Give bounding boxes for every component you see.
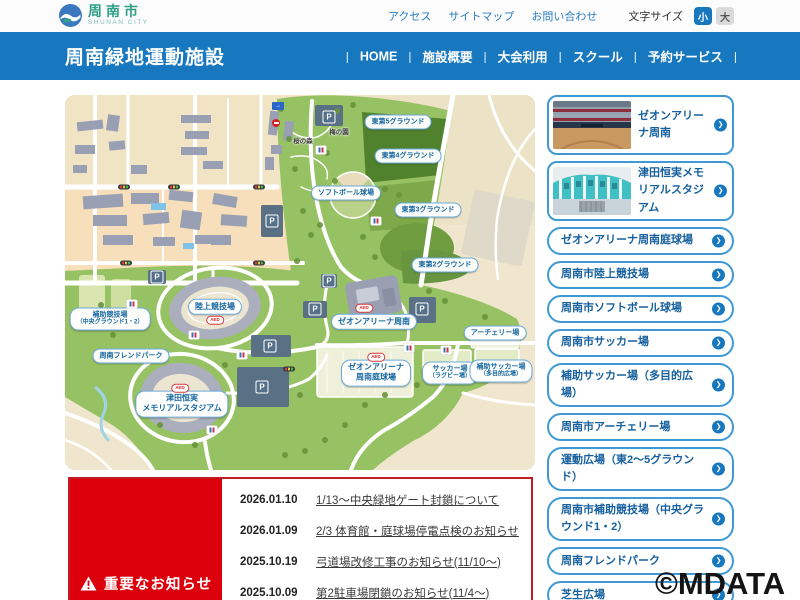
traffic-light-icon: [120, 261, 132, 266]
facility-map: 東第5グラウンド東第4グラウンドソフトボール球場東第3グラウンド東第2グラウンド…: [65, 95, 535, 470]
restroom-icon: [127, 300, 138, 309]
map-label-pill: アーチェリー場: [464, 325, 527, 340]
sidebar-link-label: 補助サッカー場（多目的広場）: [561, 368, 708, 402]
nav-separator: |: [408, 49, 411, 63]
important-notices-title: 重要なお知らせ: [104, 573, 212, 594]
nav-item[interactable]: 施設概要: [422, 47, 472, 66]
fontsize-small-button[interactable]: 小: [694, 7, 712, 25]
aed-icon: AED: [171, 384, 189, 393]
nav-separator: |: [346, 49, 349, 63]
notice-row: 2025.10.19弓道場改修工事のお知らせ(11/10〜): [240, 546, 521, 577]
restroom-icon: [189, 331, 200, 340]
map-area-label: 桜の森: [293, 135, 313, 145]
map-area-label: 梅の園: [329, 126, 349, 136]
site-header: 周南緑地運動施設 |HOME|施設概要|大会利用|スクール|予約サービス|: [0, 32, 800, 80]
nav-separator: |: [559, 49, 562, 63]
sidebar-link-label: 周南市補助競技場（中央グラウンド1・2）: [561, 502, 708, 536]
header-nav: |HOME|施設概要|大会利用|スクール|予約サービス|: [346, 47, 737, 66]
traffic-light-icon: [253, 261, 265, 266]
restroom-icon: [441, 346, 452, 355]
sidebar-link-label: 周南フレンドパーク: [561, 553, 660, 570]
map-label-pill: ゼオンアリーナ周南: [331, 314, 417, 330]
sidebar-links: ゼオンアリーナ周南庭球場❯周南市陸上競技場❯周南市ソフトボール球場❯周南市サッカ…: [547, 227, 734, 600]
chevron-right-icon: ❯: [712, 513, 725, 526]
notice-link[interactable]: 2/3 体育館・庭球場停電点検のお知らせ: [316, 523, 519, 539]
sidebar-link-label: 周南市ソフトボール球場: [561, 300, 682, 317]
notice-row: 2026.01.101/13〜中央緑地ゲート封鎖について: [240, 484, 521, 515]
top-utility-bar: 周南市 SHUNAN CITY アクセスサイトマップお問い合わせ 文字サイズ 小…: [0, 0, 800, 32]
chevron-right-icon: ❯: [712, 235, 725, 248]
aed-icon: AED: [367, 353, 385, 362]
notice-date: 2026.01.09: [240, 525, 304, 537]
city-logo-icon: [58, 3, 83, 28]
page: 周南市 SHUNAN CITY アクセスサイトマップお問い合わせ 文字サイズ 小…: [0, 0, 800, 600]
nav-separator: |: [483, 49, 486, 63]
sidebar-link[interactable]: 周南市サッカー場❯: [547, 329, 734, 357]
map-label-pill: ゼオンアリーナ周南庭球場: [341, 360, 411, 387]
fontsize-label: 文字サイズ: [628, 8, 683, 24]
restroom-icon: [316, 146, 327, 155]
map-overlay: 東第5グラウンド東第4グラウンドソフトボール球場東第3グラウンド東第2グラウンド…: [65, 95, 535, 470]
sidebar-link[interactable]: 周南市アーチェリー場❯: [547, 413, 734, 441]
aed-icon: AED: [206, 316, 224, 325]
nav-item[interactable]: HOME: [360, 49, 398, 63]
sidebar-link[interactable]: 補助サッカー場（多目的広場）❯: [547, 363, 734, 407]
nav-separator: |: [634, 49, 637, 63]
notice-list: 2026.01.101/13〜中央緑地ゲート封鎖について2026.01.092/…: [222, 479, 531, 600]
parking-icon: P: [416, 303, 429, 316]
notice-row: 2026.01.092/3 体育館・庭球場停電点検のお知らせ: [240, 515, 521, 546]
chevron-right-icon: ❯: [714, 119, 727, 132]
city-logo-text: 周南市 SHUNAN CITY: [88, 4, 149, 27]
map-label-pill: 東第5グラウンド: [365, 114, 432, 129]
city-name-romaji: SHUNAN CITY: [88, 20, 149, 27]
sidebar-link-label: 周南市陸上競技場: [561, 266, 649, 283]
sidebar-link-label: 芝生広場: [561, 587, 605, 600]
notice-link[interactable]: 1/13〜中央緑地ゲート封鎖について: [316, 492, 499, 508]
topbar-links: アクセスサイトマップお問い合わせ: [388, 8, 614, 24]
traffic-light-icon: [253, 185, 265, 190]
chevron-right-icon: ❯: [712, 337, 725, 350]
parking-icon: P: [323, 275, 336, 288]
map-label-pill: 東第3グラウンド: [395, 202, 462, 217]
map-label-pill: 陸上競技場: [188, 299, 242, 315]
notice-date: 2025.10.19: [240, 556, 304, 568]
fontsize-large-button[interactable]: 大: [716, 7, 734, 25]
sidebar-link[interactable]: 周南市ソフトボール球場❯: [547, 295, 734, 323]
aed-icon: AED: [355, 304, 373, 313]
topbar-right: アクセスサイトマップお問い合わせ 文字サイズ 小 大: [388, 0, 734, 32]
chevron-right-icon: ❯: [714, 185, 727, 198]
sidebar-link-label: ゼオンアリーナ周南庭球場: [561, 232, 693, 249]
sidebar-link-label: 周南市アーチェリー場: [561, 419, 670, 436]
nav-item[interactable]: 予約サービス: [648, 47, 723, 66]
notice-link[interactable]: 第2駐車場閉鎖のお知らせ(11/4〜): [316, 585, 489, 600]
parking-icon: P: [323, 111, 336, 124]
parking-icon: P: [151, 271, 164, 284]
sidebar-link-label: 周南市サッカー場: [561, 334, 649, 351]
topbar-link[interactable]: お問い合わせ: [531, 8, 597, 24]
parking-icon: P: [264, 340, 277, 353]
nav-separator: |: [734, 49, 737, 63]
traffic-light-icon: [168, 185, 180, 190]
sidebar-link[interactable]: ゼオンアリーナ周南庭球場❯: [547, 227, 734, 255]
no-entry-sign-icon: [272, 119, 280, 127]
nav-item[interactable]: スクール: [573, 47, 623, 66]
facility-sidebar: ゼオンアリーナ周南 ❯: [547, 95, 734, 600]
warning-icon: [80, 576, 97, 591]
chevron-right-icon: ❯: [712, 463, 725, 476]
stadium-photo: [553, 167, 631, 215]
chevron-right-icon: ❯: [712, 379, 725, 392]
watermark: ©MDATA: [655, 566, 785, 600]
direction-sign-icon: →: [272, 102, 284, 110]
traffic-light-icon: [118, 185, 130, 190]
sidebar-card-stadium[interactable]: 津田恒実メモリアルスタジアム ❯: [547, 161, 734, 221]
topbar-link[interactable]: アクセス: [388, 8, 431, 24]
topbar-link[interactable]: サイトマップ: [448, 8, 514, 24]
notice-date: 2026.01.10: [240, 494, 304, 506]
map-label-pill: 周南フレンドパーク: [93, 348, 170, 363]
map-label-pill: 東第4グラウンド: [375, 148, 442, 163]
city-name: 周南市: [88, 4, 149, 18]
parking-icon: P: [309, 303, 322, 316]
traffic-light-icon: [283, 367, 295, 372]
map-label-pill: ソフトボール球場: [311, 185, 381, 200]
page-title: 周南緑地運動施設: [65, 43, 225, 70]
sidebar-link[interactable]: 周南市補助競技場（中央グラウンド1・2）❯: [547, 497, 734, 541]
restroom-icon: [371, 217, 382, 226]
notice-date: 2025.10.09: [240, 587, 304, 599]
sidebar-link[interactable]: 周南市陸上競技場❯: [547, 261, 734, 289]
notice-row: 2025.10.09第2駐車場閉鎖のお知らせ(11/4〜): [240, 577, 521, 600]
important-notices-heading: 重要なお知らせ: [70, 479, 222, 600]
restroom-icon: [404, 344, 415, 353]
sidebar-link[interactable]: 運動広場（東2〜5グラウンド）❯: [547, 447, 734, 491]
restroom-icon: [237, 351, 248, 360]
parking-icon: P: [256, 381, 269, 394]
arena-photo: [553, 101, 631, 149]
sidebar-card-arena-label: ゼオンアリーナ周南: [638, 108, 710, 142]
parking-icon: P: [266, 215, 279, 228]
restroom-icon: [207, 426, 218, 435]
map-label-pill: 津田恒実メモリアルスタジアム: [135, 391, 228, 418]
important-notices: 重要なお知らせ 2026.01.101/13〜中央緑地ゲート封鎖について2026…: [68, 477, 533, 600]
city-logo[interactable]: 周南市 SHUNAN CITY: [58, 3, 149, 28]
map-label-pill: 補助競技場（中央グラウンド1・2）: [70, 308, 151, 331]
nav-item[interactable]: 大会利用: [498, 47, 548, 66]
chevron-right-icon: ❯: [712, 421, 725, 434]
chevron-right-icon: ❯: [712, 269, 725, 282]
map-label-pill: 東第2グラウンド: [412, 257, 479, 272]
sidebar-link-label: 運動広場（東2〜5グラウンド）: [561, 452, 708, 486]
chevron-right-icon: ❯: [712, 303, 725, 316]
sidebar-card-arena[interactable]: ゼオンアリーナ周南 ❯: [547, 95, 734, 155]
notice-link[interactable]: 弓道場改修工事のお知らせ(11/10〜): [316, 554, 501, 570]
sidebar-card-stadium-label: 津田恒実メモリアルスタジアム: [638, 165, 710, 216]
map-label-pill: 補助サッカー場（多目的広場）: [470, 360, 533, 383]
